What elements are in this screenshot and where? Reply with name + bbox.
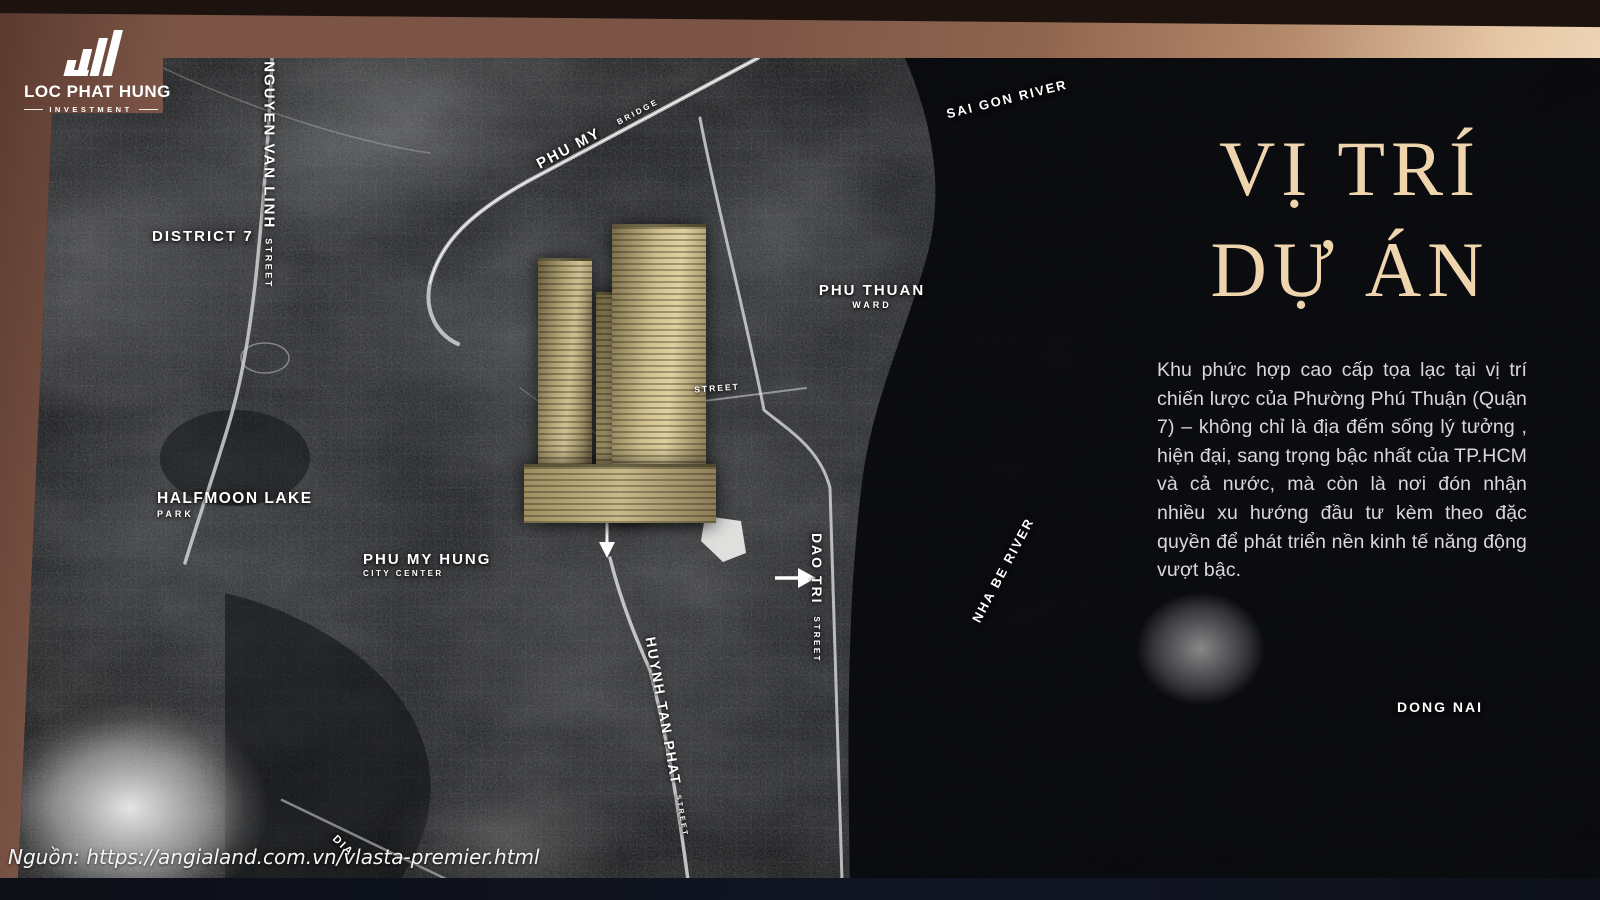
map-label-halfmoon-lake-park: HALFMOON LAKE PARK: [157, 490, 313, 519]
map-label-subtext: STREET: [264, 238, 274, 289]
logo-icon: [56, 30, 126, 78]
map-label-text: DISTRICT 7: [152, 228, 254, 245]
map-label-subtext: STREET: [813, 617, 822, 664]
logo-rule-left: [24, 109, 43, 110]
map-label-phu-my-hung-city-center: PHU MY HUNG CITY CENTER: [363, 551, 491, 578]
location-slide: DISTRICT 7 NGUYEN VAN LINH STREET PHU MY…: [0, 0, 1600, 900]
logo-division-name: INVESTMENT: [49, 105, 132, 114]
map-label-phu-thuan-ward: PHU THUAN WARD: [819, 282, 925, 310]
map-label-subtext: WARD: [852, 300, 892, 310]
map-label-nguyen-van-linh-street: NGUYEN VAN LINH STREET: [261, 61, 278, 289]
tower-podium: [524, 464, 716, 523]
map-label-text: PHU MY HUNG: [363, 551, 491, 568]
developer-logo: LOC PHAT HUNG INVESTMENT: [24, 30, 158, 114]
page-title-line2: DỰ ÁN: [1155, 219, 1545, 320]
map-label-text: DAO TRI: [809, 533, 825, 605]
map-label-text: NGUYEN VAN LINH: [261, 61, 278, 229]
map-label-text: DONG NAI: [1397, 699, 1483, 715]
source-credit: Nguồn: https://angialand.com.vn/vlasta-p…: [8, 845, 540, 869]
map-label-district-7: DISTRICT 7: [152, 228, 254, 245]
map-label-subtext: PARK: [157, 509, 194, 519]
map-label-subtext: STREET: [675, 794, 689, 837]
map-label-subtext: CITY CENTER: [363, 569, 444, 578]
map-label-dao-tri-street: DAO TRI STREET: [809, 533, 825, 663]
logo-division-row: INVESTMENT: [24, 105, 158, 114]
project-description: Khu phức hợp cao cấp tọa lạc tại vị trí …: [1157, 356, 1527, 585]
logo-company-name: LOC PHAT HUNG: [24, 82, 158, 102]
map-label-text: HALFMOON LAKE: [157, 490, 313, 508]
page-title-line1: VỊ TRÍ: [1155, 118, 1545, 219]
page-title: VỊ TRÍ DỰ ÁN: [1155, 118, 1545, 320]
map-label-dong-nai: DONG NAI: [1397, 699, 1483, 715]
logo-rule-right: [139, 109, 158, 110]
map-label-text: PHU THUAN: [819, 282, 925, 299]
bottom-dark-strip: [0, 878, 1600, 900]
